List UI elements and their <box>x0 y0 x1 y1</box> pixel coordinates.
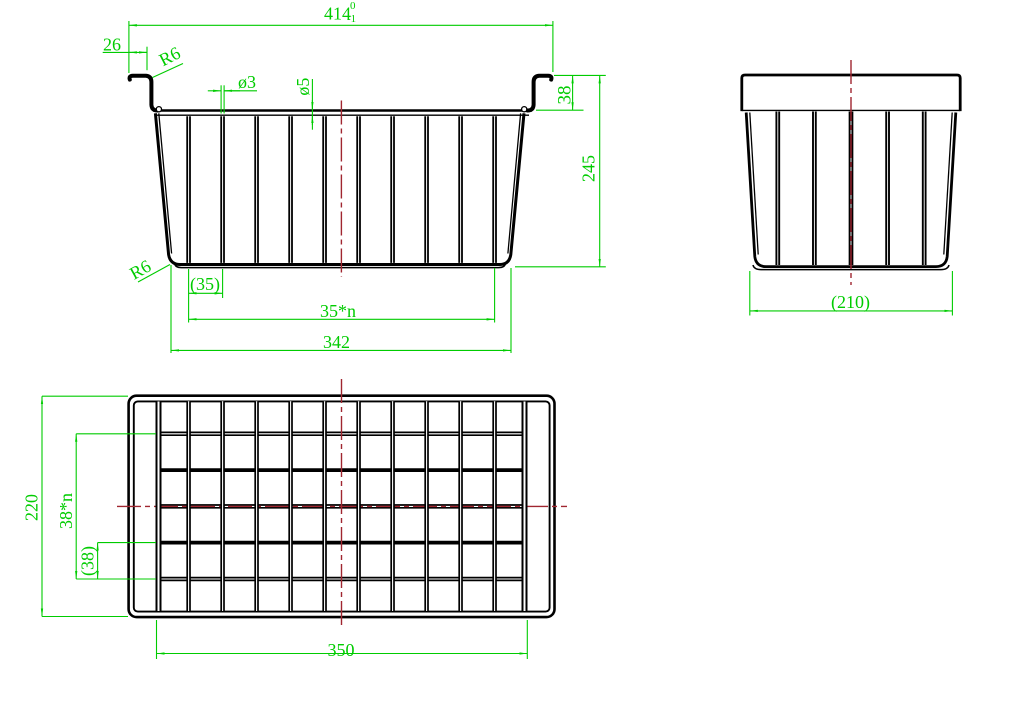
svg-text:-1: -1 <box>347 13 356 25</box>
svg-text:(210): (210) <box>831 292 870 313</box>
svg-text:0: 0 <box>350 0 356 12</box>
svg-text:ø5: ø5 <box>293 78 313 96</box>
svg-text:35*n: 35*n <box>320 301 356 321</box>
svg-text:38: 38 <box>555 86 576 105</box>
svg-text:342: 342 <box>323 332 350 352</box>
svg-text:245: 245 <box>579 155 599 182</box>
svg-text:R6: R6 <box>156 43 184 70</box>
svg-text:26: 26 <box>103 35 121 55</box>
svg-text:350: 350 <box>328 640 355 660</box>
svg-text:(38): (38) <box>78 546 99 576</box>
svg-text:(35): (35) <box>190 274 220 295</box>
svg-text:R6: R6 <box>126 256 154 284</box>
svg-text:220: 220 <box>22 494 42 521</box>
svg-text:ø3: ø3 <box>238 72 256 92</box>
svg-text:38*n: 38*n <box>56 493 76 529</box>
